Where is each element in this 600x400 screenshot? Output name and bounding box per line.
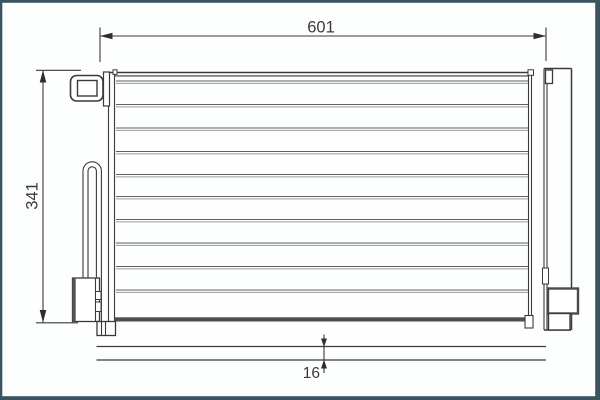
right-tank [543,69,579,331]
depth-dimension-label: 16 [303,365,320,382]
frame-border-left [0,0,2,400]
condenser-drawing: 601 341 [0,0,600,400]
fitting-plate [104,72,110,106]
drier-tab-lower [96,302,102,312]
drier-left-wall [73,278,76,322]
frame-border-bottom [0,396,600,400]
fitting-port [78,81,98,97]
frame-border [0,0,600,400]
tank-lower-block [549,314,571,331]
arrow-down-icon [321,339,327,348]
frame-border-top [0,0,600,3]
technical-drawing-screenshot: 601 341 [0,0,600,400]
tank-wall-step [543,268,549,284]
width-dimension-label: 601 [307,19,335,37]
arrow-up-icon [40,70,47,83]
mounting-foot [97,322,116,336]
core-bottom-right-step [525,316,533,329]
core-top-right-tab [528,70,534,76]
side-view [97,347,547,361]
height-dimension-label: 341 [24,182,42,210]
drier-tab-upper [96,292,102,300]
front-view: 601 341 [24,19,579,336]
condenser-core [107,70,534,328]
width-dimension: 601 [100,19,546,63]
depth-dimension: 16 [303,335,327,383]
arrow-down-icon [40,310,47,323]
core-top-left-tab [113,70,117,75]
arrow-left-icon [100,33,113,40]
foot-body [97,322,116,336]
core-bottom-edge [115,317,526,321]
core-tubes [116,81,528,292]
receiver-drier [73,278,102,322]
arrow-up-icon [321,360,327,369]
inlet-fitting [71,72,110,106]
tank-top-tab [546,70,553,84]
outlet-connector-block [548,289,578,314]
arrow-right-icon [534,33,547,40]
frame-border-right [595,0,600,400]
